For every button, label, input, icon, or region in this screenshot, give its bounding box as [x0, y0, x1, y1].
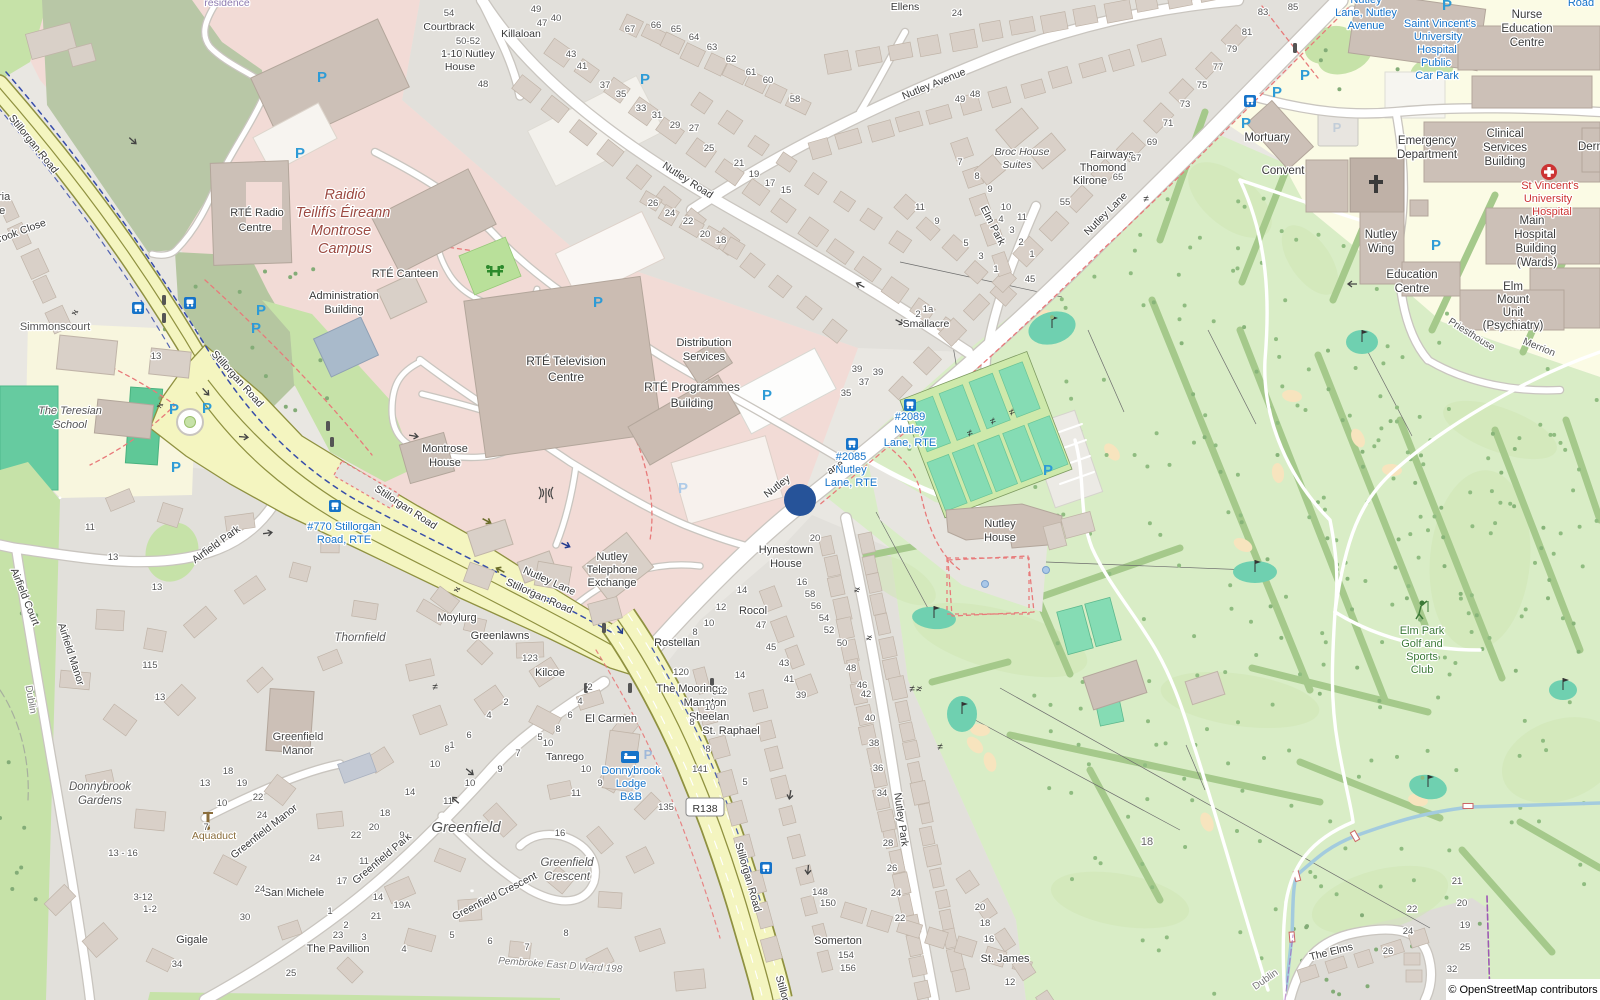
svg-text:Centre: Centre	[1510, 37, 1545, 49]
svg-text:P: P	[256, 302, 266, 319]
svg-text:(Wards): (Wards)	[1517, 257, 1558, 269]
svg-text:25: 25	[1460, 942, 1471, 953]
svg-text:Elm Park: Elm Park	[1400, 625, 1445, 637]
svg-text:The Teresian: The Teresian	[38, 405, 102, 417]
svg-text:47: 47	[537, 18, 548, 29]
svg-text:Kilrone: Kilrone	[1073, 175, 1107, 187]
svg-text:Somerton: Somerton	[814, 935, 862, 947]
svg-text:69: 69	[1147, 137, 1158, 148]
svg-text:St. James: St. James	[981, 953, 1030, 965]
svg-text:81: 81	[1242, 27, 1253, 38]
svg-text:P: P	[678, 480, 688, 497]
svg-text:Centre: Centre	[238, 222, 271, 234]
svg-text:77: 77	[1213, 62, 1224, 73]
svg-text:47: 47	[756, 620, 767, 631]
svg-text:Gardens: Gardens	[78, 795, 122, 807]
svg-text:Montrose: Montrose	[311, 223, 371, 239]
svg-text:Nutley: Nutley	[596, 551, 628, 563]
svg-text:P: P	[1241, 115, 1251, 132]
svg-text:7: 7	[515, 748, 520, 759]
svg-text:Donnybrook: Donnybrook	[69, 781, 132, 793]
svg-text:10: 10	[705, 702, 716, 713]
svg-text:56: 56	[811, 601, 822, 612]
svg-text:P: P	[169, 401, 179, 418]
svg-text:18: 18	[223, 766, 234, 777]
svg-text:62: 62	[726, 54, 737, 65]
svg-text:Unit: Unit	[1503, 307, 1524, 319]
svg-text:5: 5	[449, 930, 454, 941]
svg-text:9: 9	[497, 764, 502, 775]
svg-text:P: P	[644, 747, 653, 762]
svg-text:P: P	[1272, 84, 1282, 101]
svg-text:18: 18	[980, 918, 991, 929]
svg-text:Nutley: Nutley	[894, 424, 926, 436]
svg-text:residence: residence	[204, 0, 250, 9]
svg-text:25: 25	[704, 143, 715, 154]
svg-text:34: 34	[172, 959, 183, 970]
svg-text:House: House	[770, 558, 802, 570]
svg-text:3: 3	[1009, 225, 1014, 236]
svg-text:36: 36	[873, 763, 884, 774]
svg-text:7: 7	[203, 822, 208, 833]
svg-text:75: 75	[1197, 80, 1208, 91]
svg-text:13: 13	[151, 351, 162, 362]
svg-text:St. Raphael: St. Raphael	[702, 725, 759, 737]
svg-text:3: 3	[978, 251, 983, 262]
svg-text:Building: Building	[671, 396, 714, 410]
svg-text:60: 60	[763, 75, 774, 86]
svg-text:156: 156	[840, 963, 856, 974]
svg-text:8: 8	[692, 627, 697, 638]
svg-text:16: 16	[555, 828, 566, 839]
svg-text:Mount: Mount	[1497, 294, 1530, 306]
svg-text:P: P	[1043, 462, 1053, 479]
svg-text:61: 61	[746, 67, 757, 78]
svg-text:67: 67	[1131, 153, 1142, 164]
svg-text:House: House	[429, 457, 461, 469]
svg-text:21: 21	[734, 158, 745, 169]
svg-text:Education: Education	[1501, 23, 1552, 35]
svg-text:12: 12	[716, 602, 727, 613]
svg-text:Hospital: Hospital	[1514, 229, 1556, 241]
svg-text:12: 12	[717, 686, 728, 697]
svg-text:150: 150	[820, 898, 836, 909]
svg-text:12: 12	[1005, 977, 1016, 988]
svg-text:19: 19	[237, 778, 248, 789]
svg-text:49: 49	[531, 4, 542, 15]
svg-text:24: 24	[257, 810, 268, 821]
svg-text:3: 3	[361, 932, 366, 943]
svg-text:≠: ≠	[1143, 194, 1149, 205]
svg-text:P: P	[593, 294, 603, 311]
svg-text:Telephone: Telephone	[587, 564, 638, 576]
svg-text:24: 24	[952, 8, 963, 19]
svg-text:Nutley: Nutley	[984, 518, 1016, 530]
svg-text:House: House	[445, 61, 476, 73]
svg-text:Gigale: Gigale	[176, 934, 208, 946]
svg-text:4: 4	[577, 696, 582, 707]
svg-text:6: 6	[466, 730, 471, 741]
svg-text:Crescent: Crescent	[544, 871, 591, 883]
svg-text:24: 24	[310, 853, 321, 864]
svg-text:Building: Building	[1485, 156, 1526, 168]
svg-text:Greenfield: Greenfield	[540, 857, 594, 869]
svg-text:28: 28	[883, 838, 894, 849]
svg-text:Fairways: Fairways	[1090, 149, 1135, 161]
svg-text:≠: ≠	[432, 682, 438, 693]
svg-text:Lodge: Lodge	[0, 205, 5, 217]
svg-text:P: P	[251, 320, 261, 337]
svg-text:House: House	[984, 532, 1016, 544]
svg-text:120: 120	[673, 667, 689, 678]
svg-text:13: 13	[155, 692, 166, 703]
svg-text:Exchange: Exchange	[588, 577, 637, 589]
svg-text:23: 23	[333, 930, 344, 941]
svg-text:10: 10	[543, 738, 554, 749]
svg-text:Derm: Derm	[1578, 141, 1600, 153]
svg-text:50-52: 50-52	[456, 36, 480, 47]
svg-text:Public: Public	[1421, 57, 1451, 69]
svg-text:19: 19	[749, 169, 760, 180]
svg-text:2: 2	[915, 309, 920, 320]
svg-text:Rocol: Rocol	[739, 605, 767, 617]
svg-text:79: 79	[1227, 44, 1238, 55]
svg-text:13: 13	[200, 778, 211, 789]
svg-text:67: 67	[625, 24, 636, 35]
svg-text:18: 18	[1141, 836, 1153, 848]
svg-text:16: 16	[984, 934, 995, 945]
svg-text:11: 11	[571, 788, 581, 799]
svg-text:11: 11	[359, 856, 369, 867]
svg-text:Tanrego: Tanrego	[546, 751, 584, 763]
svg-text:20: 20	[975, 902, 986, 913]
svg-text:Broc House: Broc House	[995, 146, 1050, 158]
svg-text:#2085: #2085	[836, 451, 867, 463]
svg-text:Nurse: Nurse	[1512, 9, 1543, 21]
svg-text:Building: Building	[1516, 243, 1557, 255]
svg-text:21: 21	[1452, 876, 1463, 887]
svg-text:22: 22	[253, 792, 264, 803]
svg-text:8: 8	[705, 744, 710, 755]
svg-text:Hospital: Hospital	[1417, 44, 1457, 56]
svg-text:8: 8	[974, 171, 979, 182]
svg-text:Ellens: Ellens	[891, 1, 920, 13]
svg-text:Mortuary: Mortuary	[1244, 132, 1290, 144]
svg-text:Smallacre: Smallacre	[903, 318, 950, 330]
svg-text:University: University	[1524, 193, 1573, 205]
svg-text:22: 22	[351, 830, 362, 841]
svg-text:22: 22	[683, 216, 694, 227]
svg-text:1-2: 1-2	[143, 904, 157, 915]
svg-text:Lane, RTE: Lane, RTE	[825, 477, 877, 489]
svg-text:Donnybrook: Donnybrook	[601, 765, 661, 777]
svg-text:63: 63	[707, 42, 718, 53]
svg-text:6: 6	[567, 710, 572, 721]
svg-text:P: P	[295, 145, 305, 162]
svg-text:40: 40	[865, 713, 876, 724]
svg-text:31: 31	[652, 110, 663, 121]
svg-text:141: 141	[692, 764, 708, 775]
svg-text:Centre: Centre	[548, 370, 584, 384]
svg-text:11: 11	[443, 796, 453, 807]
svg-text:Simmonscourt: Simmonscourt	[20, 321, 90, 333]
svg-text:43: 43	[779, 658, 790, 669]
svg-text:RTÉ Canteen: RTÉ Canteen	[372, 267, 438, 280]
svg-text:Emergency: Emergency	[1398, 135, 1456, 147]
svg-text:50: 50	[837, 638, 848, 649]
svg-text:26: 26	[887, 863, 898, 874]
svg-text:Rostellan: Rostellan	[654, 637, 700, 649]
svg-text:≠: ≠	[909, 684, 915, 695]
svg-text:Road: Road	[1568, 0, 1594, 9]
svg-text:35: 35	[841, 388, 852, 399]
svg-text:10: 10	[465, 778, 476, 789]
svg-text:© OpenStreetMap contributors: © OpenStreetMap contributors	[1448, 984, 1598, 996]
svg-text:4: 4	[486, 710, 491, 721]
svg-text:15: 15	[781, 185, 792, 196]
svg-text:Car Park: Car Park	[1415, 70, 1459, 82]
svg-text:RTÉ Programmes: RTÉ Programmes	[644, 379, 740, 394]
svg-text:9: 9	[987, 184, 992, 195]
svg-text:45: 45	[766, 642, 777, 653]
svg-text:21: 21	[371, 911, 382, 922]
svg-text:P: P	[317, 69, 327, 86]
svg-text:9: 9	[597, 778, 602, 789]
svg-text:2: 2	[503, 697, 508, 708]
svg-text:Moylurg: Moylurg	[437, 612, 476, 624]
svg-text:#770 Stillorgan: #770 Stillorgan	[307, 521, 380, 533]
svg-text:18: 18	[716, 235, 727, 246]
svg-text:10: 10	[581, 764, 592, 775]
svg-text:10: 10	[704, 618, 715, 629]
svg-text:Golf and: Golf and	[1401, 638, 1443, 650]
svg-text:4: 4	[401, 944, 406, 955]
svg-text:Sports: Sports	[1406, 651, 1438, 663]
svg-text:2: 2	[1018, 237, 1023, 248]
svg-text:Department: Department	[1397, 149, 1458, 161]
svg-text:20: 20	[1457, 898, 1468, 909]
svg-text:48: 48	[970, 89, 981, 100]
svg-text:Raidió: Raidió	[324, 187, 365, 203]
svg-text:73: 73	[1180, 99, 1191, 110]
svg-text:85: 85	[1288, 2, 1299, 13]
svg-text:Nutley: Nutley	[1365, 229, 1398, 241]
svg-text:1: 1	[993, 264, 998, 275]
svg-text:Aquaduct: Aquaduct	[192, 830, 236, 842]
svg-text:48: 48	[846, 663, 857, 674]
svg-text:Road, RTE: Road, RTE	[317, 534, 371, 546]
svg-text:1: 1	[327, 906, 332, 917]
svg-text:37: 37	[600, 80, 611, 91]
svg-text:45: 45	[1025, 274, 1036, 285]
svg-text:35: 35	[616, 89, 627, 100]
svg-text:64: 64	[689, 32, 700, 43]
svg-text:Campus: Campus	[318, 241, 372, 257]
svg-text:14: 14	[373, 892, 384, 903]
svg-text:Greenfield: Greenfield	[273, 731, 324, 743]
svg-text:32: 32	[1447, 964, 1458, 975]
svg-text:2: 2	[587, 682, 592, 693]
svg-text:Kilcoe: Kilcoe	[535, 667, 565, 679]
svg-text:39: 39	[796, 690, 807, 701]
svg-text:Main: Main	[1520, 215, 1545, 227]
svg-text:3-12: 3-12	[133, 892, 152, 903]
svg-text:Greenfield: Greenfield	[431, 819, 501, 836]
svg-text:P: P	[762, 387, 772, 404]
svg-text:Victoria: Victoria	[0, 191, 11, 203]
svg-text:5: 5	[742, 777, 747, 788]
svg-text:22: 22	[895, 913, 906, 924]
svg-text:7: 7	[957, 157, 962, 168]
svg-text:Courtbrack: Courtbrack	[423, 21, 475, 33]
svg-text:20: 20	[700, 229, 711, 240]
svg-text:Manor: Manor	[282, 745, 314, 757]
svg-text:24: 24	[891, 888, 902, 899]
svg-text:Thornfield: Thornfield	[334, 632, 386, 644]
svg-text:83: 83	[1258, 7, 1269, 18]
svg-text:El Carmen: El Carmen	[585, 713, 637, 725]
svg-text:41: 41	[577, 61, 588, 72]
svg-text:65: 65	[671, 24, 682, 35]
svg-text:27: 27	[689, 123, 700, 134]
svg-text:24: 24	[1403, 926, 1414, 937]
svg-text:Centre: Centre	[1395, 283, 1430, 295]
svg-text:Club: Club	[1411, 664, 1434, 676]
svg-text:RTÉ Television: RTÉ Television	[526, 353, 606, 368]
svg-text:Clinical: Clinical	[1486, 128, 1523, 140]
svg-text:148: 148	[812, 887, 828, 898]
svg-text:11: 11	[1017, 212, 1027, 223]
svg-text:42: 42	[861, 689, 872, 700]
svg-text:10: 10	[430, 759, 441, 770]
svg-text:(Psychiatry): (Psychiatry)	[1483, 320, 1544, 332]
svg-text:Services: Services	[683, 351, 726, 363]
svg-text:24: 24	[665, 208, 676, 219]
svg-text:1: 1	[449, 740, 454, 751]
svg-text:Lodge: Lodge	[616, 778, 647, 790]
svg-text:19: 19	[1460, 920, 1471, 931]
svg-text:43: 43	[566, 49, 577, 60]
svg-text:Hynestown: Hynestown	[759, 544, 813, 556]
svg-text:13: 13	[152, 582, 163, 593]
svg-text:Administration: Administration	[309, 290, 379, 302]
svg-text:Killaloan: Killaloan	[501, 28, 541, 40]
svg-text:66: 66	[651, 20, 662, 31]
svg-text:8: 8	[689, 717, 694, 728]
svg-text:10: 10	[217, 798, 228, 809]
svg-text:#2089: #2089	[895, 411, 926, 423]
svg-text:17: 17	[765, 178, 776, 189]
svg-text:115: 115	[142, 660, 157, 671]
svg-text:26: 26	[648, 198, 659, 209]
svg-text:Services: Services	[1483, 142, 1527, 154]
svg-text:R138: R138	[692, 803, 717, 815]
svg-text:34: 34	[877, 788, 888, 799]
svg-text:38: 38	[869, 738, 880, 749]
svg-text:RTÉ Radio: RTÉ Radio	[230, 206, 284, 219]
svg-text:P: P	[1333, 120, 1342, 135]
svg-text:20: 20	[369, 822, 380, 833]
svg-text:65: 65	[1113, 172, 1124, 183]
svg-text:19A: 19A	[394, 900, 412, 911]
svg-text:48: 48	[478, 79, 489, 90]
svg-text:40: 40	[551, 13, 562, 24]
svg-text:Nutley: Nutley	[835, 464, 867, 476]
svg-text:154: 154	[838, 950, 854, 961]
svg-text:58: 58	[790, 94, 801, 105]
svg-text:Wing: Wing	[1368, 243, 1394, 255]
svg-text:Lane, Nutley: Lane, Nutley	[1335, 7, 1397, 19]
svg-text:2: 2	[343, 920, 348, 931]
svg-text:The Moorings: The Moorings	[656, 683, 724, 695]
svg-text:Teilifís Éireann: Teilifís Éireann	[296, 204, 391, 221]
svg-text:71: 71	[1163, 118, 1174, 129]
svg-text:Distribution: Distribution	[676, 337, 731, 349]
svg-text:17: 17	[337, 876, 348, 887]
svg-text:14: 14	[737, 585, 748, 596]
svg-text:135: 135	[658, 802, 674, 813]
svg-text:13 - 16: 13 - 16	[108, 848, 138, 859]
svg-text:10: 10	[1001, 202, 1012, 213]
svg-text:1a: 1a	[923, 304, 934, 315]
svg-text:54: 54	[819, 613, 830, 624]
svg-text:9: 9	[399, 830, 404, 841]
svg-text:58: 58	[805, 589, 816, 600]
svg-text:54: 54	[444, 8, 455, 19]
svg-text:1-10 Nutley: 1-10 Nutley	[441, 48, 495, 60]
svg-text:Suites: Suites	[1002, 159, 1032, 171]
svg-text:25: 25	[286, 968, 297, 979]
svg-text:Convent: Convent	[1262, 165, 1306, 177]
svg-text:9: 9	[934, 216, 939, 227]
svg-text:29: 29	[670, 120, 681, 131]
svg-text:Greenlawns: Greenlawns	[471, 630, 530, 642]
svg-text:123: 123	[522, 653, 538, 664]
svg-text:11: 11	[915, 202, 925, 213]
svg-text:55: 55	[1060, 197, 1071, 208]
svg-text:37: 37	[859, 377, 870, 388]
svg-text:8: 8	[563, 928, 568, 939]
svg-text:Nutley: Nutley	[1350, 0, 1382, 6]
svg-text:Building: Building	[324, 304, 363, 316]
svg-text:5: 5	[963, 238, 968, 249]
svg-text:P: P	[640, 71, 650, 88]
svg-text:16: 16	[797, 577, 808, 588]
svg-text:41: 41	[784, 674, 795, 685]
svg-text:13: 13	[108, 552, 119, 563]
svg-text:4: 4	[998, 214, 1003, 225]
svg-text:26: 26	[1383, 946, 1394, 957]
svg-text:Montrose: Montrose	[422, 443, 468, 455]
svg-text:University: University	[1414, 31, 1463, 43]
svg-text:Lane, RTE: Lane, RTE	[884, 437, 936, 449]
svg-text:6: 6	[487, 936, 492, 947]
svg-text:Saint Vincent's: Saint Vincent's	[1404, 18, 1477, 30]
svg-text:14: 14	[735, 670, 746, 681]
svg-text:San Michele: San Michele	[264, 887, 325, 899]
svg-text:8: 8	[555, 724, 560, 735]
svg-text:School: School	[53, 419, 87, 431]
svg-text:7: 7	[524, 942, 529, 953]
svg-text:22: 22	[1407, 904, 1418, 915]
svg-text:The Pavillion: The Pavillion	[307, 943, 370, 955]
svg-text:49: 49	[955, 94, 966, 105]
svg-text:≠: ≠	[937, 742, 943, 753]
svg-text:39: 39	[873, 367, 884, 378]
svg-text:24: 24	[255, 884, 266, 895]
svg-text:52: 52	[824, 625, 835, 636]
svg-text:P: P	[1300, 67, 1310, 84]
